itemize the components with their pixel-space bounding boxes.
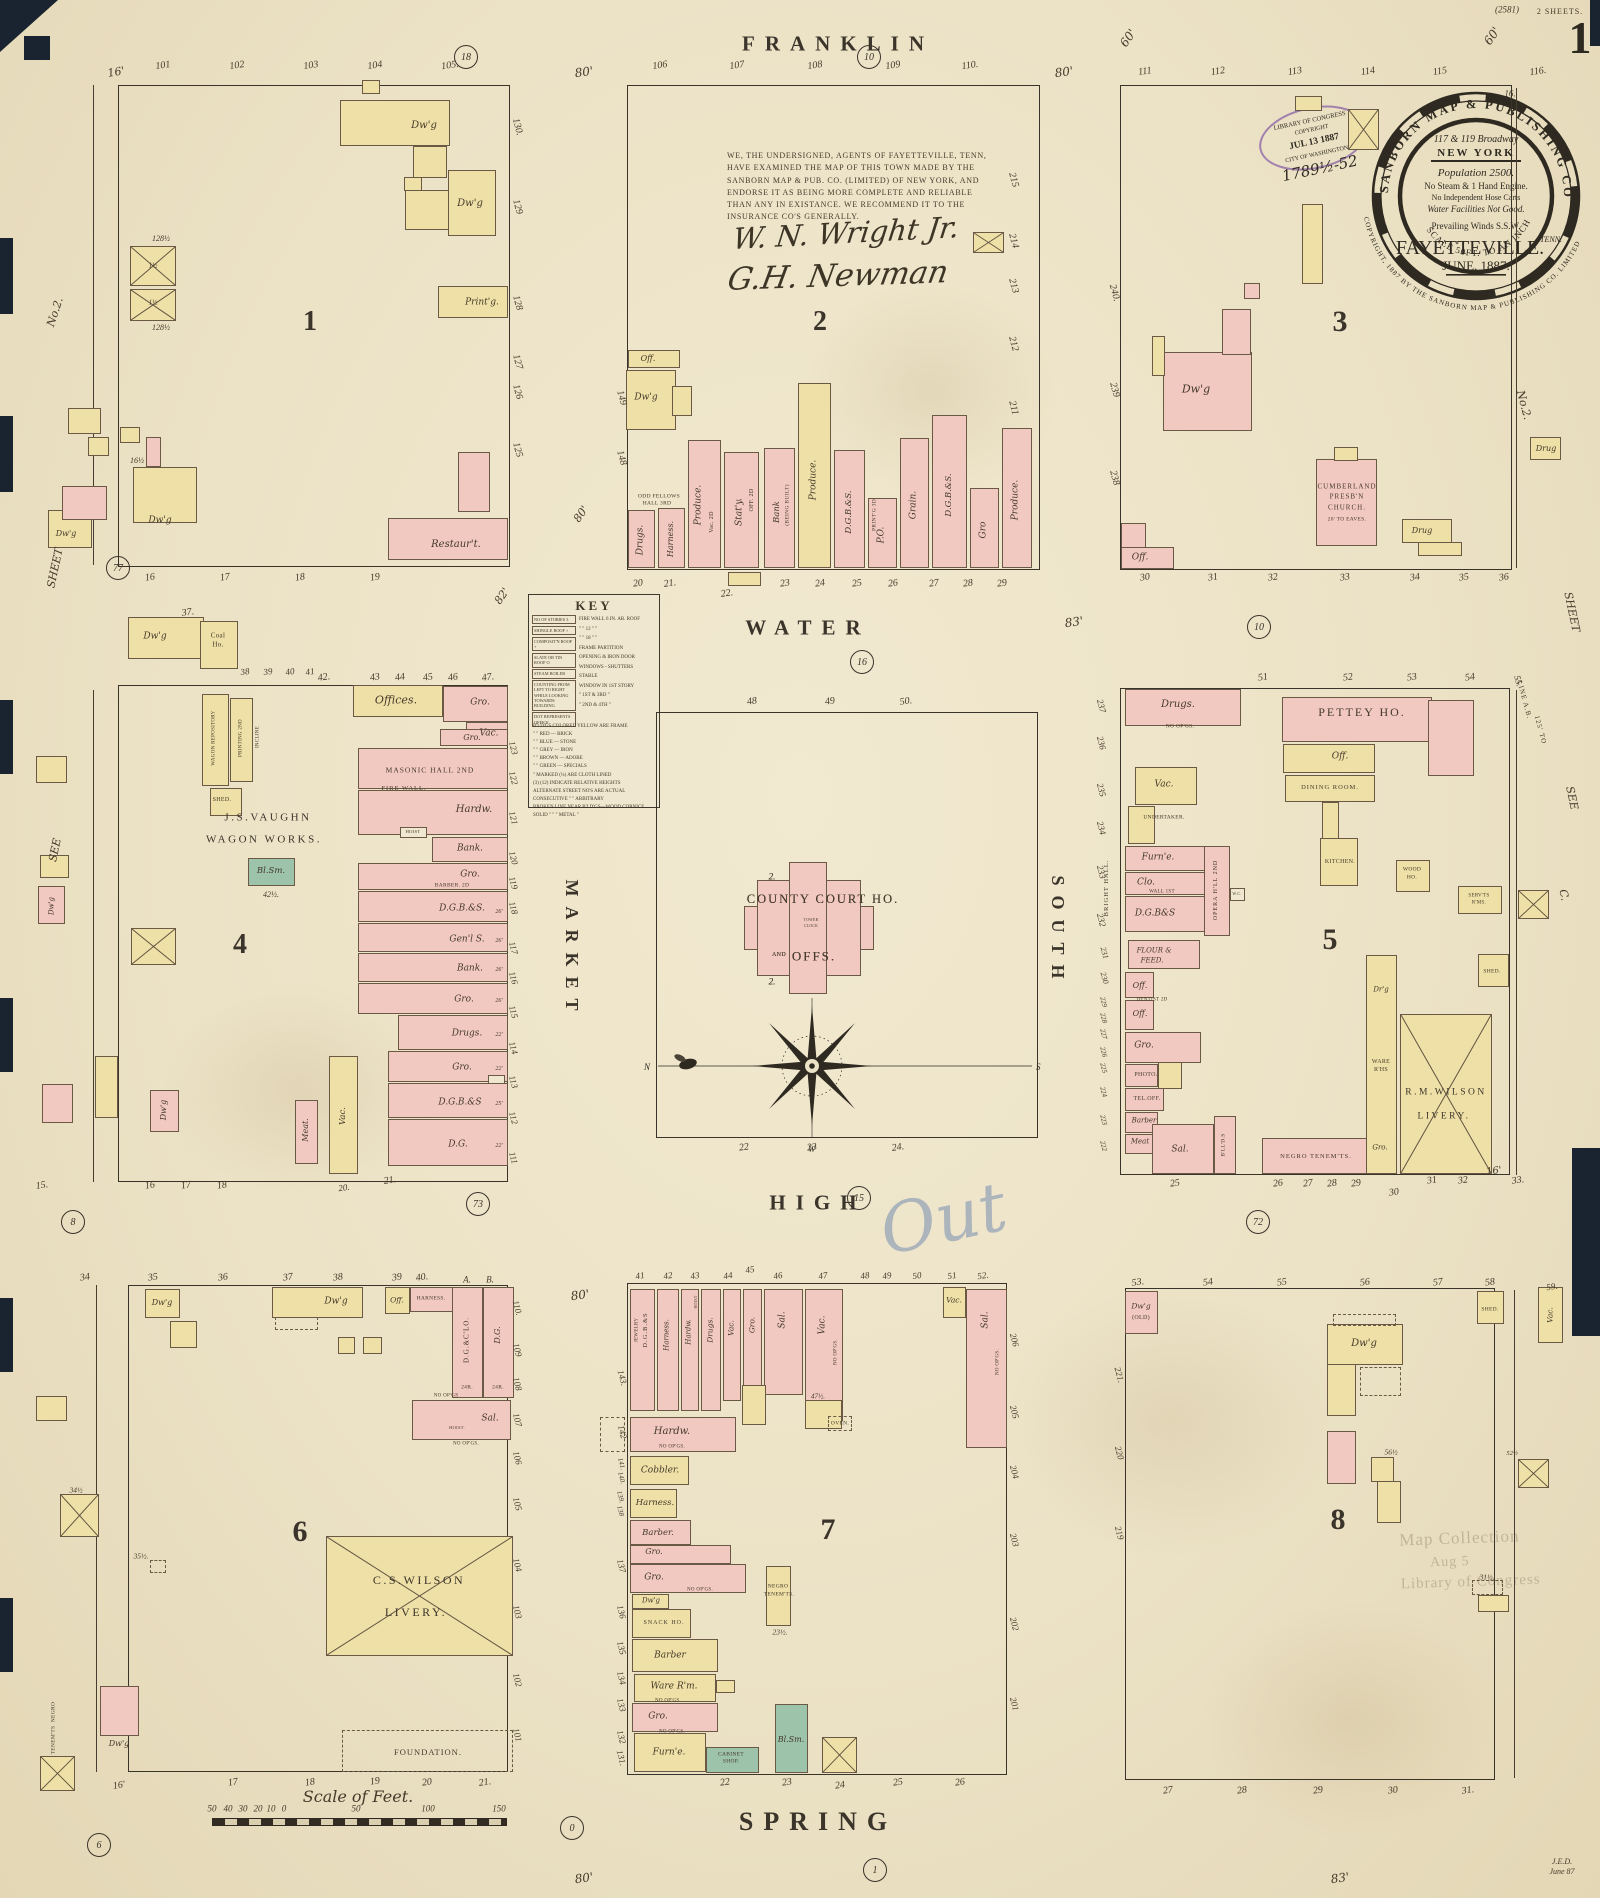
building-label: WOOD	[1403, 867, 1421, 873]
key-lines-column: FIRE WALL 6 IN. AB. ROOF" " 12 " "" " 18…	[579, 615, 659, 710]
lot-number: 23	[806, 1142, 817, 1153]
building-label: Off.	[1133, 982, 1148, 990]
building	[404, 177, 422, 191]
key-line-item: WINDOWS - SHUTTERS	[579, 663, 659, 673]
lot-number: 22'	[495, 1032, 502, 1038]
lot-number: 29	[1350, 1178, 1361, 1189]
building-label: Dw'g	[642, 1598, 660, 1605]
margin-note: SEE	[1564, 785, 1580, 810]
building-label: Gro	[980, 522, 989, 539]
key-color-item: " " GREEN — SPECIALS	[533, 763, 659, 771]
building-label: Off.	[1133, 1010, 1148, 1018]
building-label: NO OP'GS.	[659, 1730, 685, 1735]
building-label: SHOP.	[723, 1759, 739, 1765]
lot-number: 133	[615, 1697, 627, 1712]
lot-number: 132	[615, 1729, 627, 1744]
building-label: Vac.	[1155, 781, 1174, 790]
building	[701, 1289, 721, 1411]
lot-number: 26'	[495, 909, 502, 915]
lot-number: 125	[510, 441, 524, 458]
key-color-item: B'LD'GS COLORED YELLOW ARE FRAME	[533, 723, 659, 731]
building-label: LIVERY.	[385, 1606, 447, 1618]
building-label: DINING ROOM.	[1301, 785, 1359, 792]
building	[150, 1560, 166, 1573]
tower-clock-label: TOWER	[804, 919, 819, 923]
lot-number: 230	[1099, 971, 1110, 985]
key-color-item: CONSECUTIVE " " ARBITRARY	[533, 796, 659, 804]
lot-number: 107	[729, 60, 745, 72]
lot-number: 47	[818, 1271, 828, 1281]
building-label: Grain.	[910, 491, 919, 519]
scale-bar-label: 150	[492, 1805, 506, 1814]
building	[1377, 1481, 1401, 1523]
street-width-measurement: 80'	[1054, 65, 1074, 79]
scale-bar-label: 50	[352, 1805, 361, 1814]
building-label: C.S.WILSON	[373, 1574, 465, 1586]
lot-number: 36	[1498, 572, 1509, 583]
building-label: HOIST	[406, 830, 421, 835]
building-label: SERV'TS	[1468, 894, 1489, 899]
building	[1371, 1457, 1394, 1482]
scale-bar	[212, 1818, 507, 1826]
lot-number: 23	[781, 1777, 792, 1788]
building	[1418, 542, 1462, 556]
lot-number: June 87	[1549, 1868, 1574, 1876]
lot-number: 240.	[1107, 283, 1121, 302]
circled-survey-marker: 15	[847, 1186, 871, 1210]
building-label: NO OP'GS.	[996, 1349, 1001, 1375]
lot-number: 42.	[317, 672, 331, 684]
lot-number: 48	[860, 1271, 870, 1281]
key-color-item: " " RED — BRICK	[533, 731, 659, 739]
lot-number: 139.	[615, 1490, 625, 1504]
lot-number: 26'	[495, 967, 502, 973]
lot-number: 42½.	[263, 891, 279, 899]
building	[362, 80, 380, 94]
lot-number: 119	[507, 876, 519, 891]
scale-bar-label: 0	[282, 1805, 287, 1814]
circled-survey-marker: 72	[1246, 1210, 1270, 1234]
building-label: Gro.	[470, 699, 490, 708]
circled-survey-marker: 1	[863, 1858, 887, 1882]
building-label: Sal.	[481, 1415, 498, 1424]
key-color-notes: B'LD'GS COLORED YELLOW ARE FRAME" " RED …	[533, 723, 659, 820]
lot-number: 44	[723, 1271, 733, 1281]
lot-number: 56	[1359, 1277, 1370, 1288]
lot-number: 23	[779, 578, 790, 589]
lot-number: 26'	[495, 938, 502, 944]
building	[36, 1396, 67, 1421]
lot-number: 238	[1107, 469, 1121, 486]
lot-number: 38	[240, 667, 250, 677]
lot-number: 51	[1257, 672, 1268, 683]
lot-number: 33	[1339, 572, 1350, 583]
building	[1125, 1291, 1158, 1334]
building-label: 20' TO EAVES.	[1328, 517, 1367, 523]
lot-number: 104	[367, 60, 383, 72]
street-name: MARKET	[563, 880, 581, 1021]
tower-clock-label: CLOCK	[804, 925, 818, 929]
building	[632, 1703, 718, 1732]
circled-survey-marker: 10	[1247, 615, 1271, 639]
building-label: D.G.B.&S.	[845, 490, 854, 533]
street-width-measurement: 83'	[1064, 615, 1084, 629]
building	[170, 1321, 197, 1348]
lot-number: 17	[180, 1180, 191, 1191]
building	[1128, 806, 1155, 844]
building-label: NO OP'GS.	[453, 1442, 479, 1447]
building-label: Meat.	[302, 1118, 310, 1141]
stable-cross-icon	[1519, 1460, 1548, 1487]
lot-number: 1½	[149, 300, 158, 307]
street-width-measurement: 80'	[570, 1288, 590, 1302]
lot-number: 51	[947, 1271, 957, 1281]
building-label: D.G.B.&S	[643, 1312, 650, 1347]
circled-survey-marker: 18	[454, 45, 478, 69]
building-label: SNACK HO.	[643, 1620, 684, 1626]
building	[728, 572, 761, 586]
key-line-item: STABLE	[579, 672, 659, 682]
lot-number: 20	[632, 578, 643, 589]
building-label: JEWELRY	[635, 1318, 640, 1343]
key-color-item: BROKEN LINE NEAR B'LD'GS—WOOD CORNICE	[533, 804, 659, 812]
key-symbol-column: NO OF STORIES 3SHINGLE ROOF ×COMPOSIT'N …	[532, 615, 576, 729]
lot-number: 43	[690, 1271, 700, 1281]
building-label: FIRE WALL.	[381, 786, 426, 793]
building-label: NO OP'GS.	[687, 1588, 713, 1593]
lot-number: 137	[615, 1558, 627, 1573]
lot-number: 203	[1008, 1532, 1020, 1547]
lot-number: 16½	[130, 457, 144, 465]
building-label: OFF. 2D	[749, 489, 755, 512]
lot-number: 223	[1098, 1114, 1107, 1126]
courthouse-offices-label: OFFS.	[792, 950, 836, 963]
building-label: (BEING BUILT)	[785, 484, 791, 525]
courthouse-and-label: AND	[772, 952, 786, 958]
building-label: Dw'g	[148, 517, 171, 526]
lot-number: 29	[1312, 1785, 1323, 1796]
building-label: Barber	[1132, 1118, 1157, 1125]
block-number: 4	[233, 931, 247, 959]
lot-number: 220	[1113, 1445, 1125, 1460]
key-line-item: " " 12 " "	[579, 625, 659, 635]
lot-number: 126	[510, 383, 524, 400]
scale-bar-label: 30	[239, 1805, 248, 1814]
building-label: Gro.	[463, 734, 480, 742]
building-label: ODD FELLOWS	[638, 494, 680, 500]
lot-number: 22	[719, 1777, 730, 1788]
building-label: Vac.	[1546, 1307, 1554, 1323]
lot-number: 31.	[1461, 1785, 1475, 1797]
building-label: TEL.OFF.	[1134, 1096, 1161, 1102]
building	[358, 923, 508, 952]
building-label: Ware R'm.	[651, 1683, 698, 1692]
lot-number: 40.	[415, 1272, 429, 1284]
lot-number: 31	[1426, 1175, 1437, 1186]
building-label: INCLINE	[256, 726, 261, 748]
building-label: Drugs.	[452, 1030, 483, 1039]
building-label: R'HS	[1374, 1067, 1388, 1073]
key-line-item: " " 18 " "	[579, 634, 659, 644]
lot-number: 19	[369, 572, 380, 583]
lot-number: 31½.	[1480, 1573, 1495, 1581]
lot-number: 21.	[383, 1175, 397, 1187]
building-label: Sal.	[982, 1311, 991, 1328]
building-label: HOIST.	[449, 1426, 465, 1431]
building	[36, 756, 67, 783]
building-label: MASONIC HALL 2ND	[386, 766, 475, 774]
building-label: SHED.	[1483, 969, 1500, 975]
building	[1428, 700, 1474, 776]
lot-number: 50	[912, 1271, 922, 1281]
building-label: R.M.WILSON	[1405, 1088, 1486, 1098]
building	[62, 486, 107, 520]
building-label: D.G.B.&S.	[945, 473, 954, 516]
building	[413, 146, 447, 178]
lot-number: 57	[1432, 1277, 1443, 1288]
building-label: B'LL'D.S	[1221, 1133, 1227, 1156]
building	[672, 386, 692, 416]
lot-number: 59.	[1546, 1282, 1558, 1292]
lot-number: 1½	[149, 263, 158, 270]
building-label: PHOTO.	[1134, 1072, 1157, 1078]
building	[1152, 336, 1165, 376]
lot-number: 224	[1098, 1086, 1107, 1098]
lot-number: 117	[507, 941, 519, 956]
building-label: J.S.VAUGHN	[224, 813, 311, 824]
building-label: Meat	[1131, 1139, 1149, 1146]
lot-number: 24	[834, 1780, 845, 1791]
building-label: CUMBERLAND	[1317, 484, 1376, 491]
street-width-measurement: 80'	[574, 1871, 594, 1885]
lot-number: 38	[332, 1272, 343, 1283]
lot-number: 226	[1098, 1046, 1107, 1058]
building	[1244, 283, 1260, 299]
scale-bar-label: 20	[254, 1805, 263, 1814]
building	[1295, 96, 1322, 111]
lot-number: 49	[882, 1271, 892, 1281]
lot-number: 45	[422, 672, 433, 683]
building-label: Dw'g	[56, 530, 77, 538]
block-number: 6	[293, 1517, 308, 1547]
lot-number: 101	[155, 60, 171, 72]
circled-survey-marker: 0	[560, 1816, 584, 1840]
block-outline	[1125, 1288, 1495, 1780]
key-line-item: FIRE WALL 6 IN. AB. ROOF	[579, 615, 659, 625]
building	[120, 427, 140, 443]
key-symbol-item: STEAM BOILER	[532, 669, 576, 678]
street-width-measurement: 60'	[1482, 25, 1502, 47]
lot-number: 234	[1095, 820, 1107, 835]
scan-edge-artifact	[1590, 0, 1600, 46]
lot-number: 128½	[152, 235, 170, 243]
building	[95, 1056, 118, 1118]
building-label: Vac.	[339, 1107, 348, 1125]
lot-number: 131.	[615, 1749, 628, 1767]
storey-count: 2.	[769, 978, 776, 987]
margin-note: No.2.	[45, 296, 65, 328]
building-label: Vac. 2D	[709, 511, 715, 532]
building	[405, 190, 449, 230]
building	[358, 863, 508, 890]
building-label: Drugs.	[637, 525, 646, 556]
building-label: Gen'l S.	[449, 936, 484, 945]
lot-number: 27	[928, 578, 939, 589]
building-label: Offices.	[375, 695, 417, 706]
building-label: Vac.	[480, 730, 499, 739]
building-label: Furn'e.	[1142, 854, 1175, 863]
lot-number: 35½.	[134, 1552, 149, 1560]
building	[363, 1337, 382, 1354]
lot-number: 102	[229, 60, 245, 72]
building-label: Dw'g	[634, 394, 657, 403]
key-color-item: (3) (12) INDICATE RELATIVE HEIGHTS	[533, 780, 659, 788]
lot-number: 48	[746, 696, 757, 707]
lot-number: 26	[887, 578, 898, 589]
building	[1283, 744, 1375, 773]
stable-cross-icon	[974, 233, 1003, 252]
lot-number: 27	[1162, 1785, 1173, 1796]
building-label: Dw'g	[457, 199, 483, 209]
building-label: D.G.B.&S.	[439, 905, 485, 914]
building-label: Sal.	[779, 1311, 788, 1328]
building-label: BRIGHT HALL.	[1104, 860, 1111, 917]
lot-number: 41	[635, 1271, 645, 1281]
lot-number: 23½.	[773, 1628, 788, 1636]
lot-number: 28	[1236, 1785, 1247, 1796]
lot-number: 40	[285, 667, 295, 677]
building	[716, 1680, 735, 1693]
building-label: Drugs.	[1161, 700, 1195, 710]
building	[1158, 1062, 1182, 1089]
lot-number: 22.	[720, 588, 734, 600]
lot-number: 113	[507, 1075, 519, 1090]
lot-number: 28	[962, 578, 973, 589]
block-number: 2	[813, 308, 827, 336]
lot-number: 16.	[1504, 90, 1515, 99]
circled-survey-marker: 6	[87, 1833, 111, 1857]
building	[742, 1385, 766, 1425]
building-label: CHURCH.	[1328, 505, 1366, 512]
lot-number: A.	[463, 1276, 471, 1285]
block-number: 3	[1333, 307, 1348, 337]
building-label: WALL 1ST	[1149, 890, 1175, 895]
lot-number: 231	[1099, 946, 1110, 960]
building-label: HALL 3RD	[643, 501, 672, 507]
margin-note: SHEET	[45, 547, 64, 589]
stable-cross-icon	[132, 929, 175, 964]
lot-number: 27	[1302, 1178, 1313, 1189]
key-symbol-item: COMPOSIT'N ROOF +	[532, 637, 576, 652]
building-label: Vac.	[727, 1320, 735, 1336]
building-label: NO OP'GS.	[1166, 724, 1194, 730]
lot-number: 19	[369, 1776, 380, 1787]
lot-number: 114	[1360, 66, 1376, 78]
lot-number: 29	[996, 578, 1007, 589]
stable-cross-icon	[1519, 891, 1548, 918]
lot-number: 228	[1098, 1012, 1107, 1024]
lot-number: 221.	[1113, 1366, 1126, 1384]
key-line-item: " 2ND & 4TH "	[579, 701, 659, 711]
margin-note: No.2.	[1515, 389, 1533, 421]
lot-number: 25	[1169, 1178, 1180, 1189]
lot-number: 34½	[69, 1486, 82, 1494]
street-width-measurement: 16'	[107, 65, 126, 79]
building-label: Bl.Sm.	[778, 1736, 805, 1744]
lot-number: 34	[79, 1272, 90, 1283]
building-label: Produce.	[1012, 480, 1021, 521]
lot-number: 106	[652, 60, 668, 72]
building	[358, 983, 508, 1014]
building-label: Dw'g	[160, 1100, 168, 1121]
lot-number: 53.	[1131, 1277, 1145, 1289]
building-label: Harness.	[636, 1499, 674, 1508]
building-label: Sal.	[1171, 1146, 1188, 1155]
lot-number: 235	[1095, 782, 1107, 797]
lot-number: 107	[511, 1412, 523, 1427]
lot-number: 121	[507, 810, 519, 825]
building-label: 24R.	[492, 1385, 504, 1391]
lot-number: 35	[1458, 572, 1469, 583]
building-label: Vac.	[819, 1316, 828, 1335]
key-line-item: WINDOW IN 1ST STORY	[579, 682, 659, 692]
building-label: Furn'e.	[653, 1749, 686, 1758]
lot-number: 15.	[35, 1180, 49, 1192]
lot-number: 239	[1107, 381, 1121, 398]
building	[1316, 459, 1377, 546]
margin-street-line	[93, 690, 94, 1182]
key-symbol-item: NO OF STORIES 3	[532, 615, 576, 624]
lot-number: 58	[1484, 1277, 1495, 1288]
lot-number: 17	[219, 572, 230, 583]
building-label: Hardw.	[686, 1319, 693, 1345]
storey-count: 2.	[769, 873, 776, 882]
building-label: NEGRO	[768, 1584, 788, 1590]
lot-number: 33.	[1511, 1175, 1525, 1187]
lot-number: 202	[1008, 1616, 1020, 1631]
building-label: Restaur't.	[431, 540, 481, 550]
lot-number: 54	[1202, 1277, 1213, 1288]
building-label: P.O.	[878, 527, 887, 544]
stable-building	[1518, 1459, 1549, 1488]
building-label: Dw'g	[1182, 384, 1210, 395]
lot-number: 43	[369, 672, 380, 683]
building-label: Gro.	[452, 1064, 472, 1073]
building	[744, 906, 758, 950]
building-label: Drug	[1536, 445, 1557, 453]
building	[743, 1289, 762, 1389]
building-label: Dw'g	[109, 1740, 130, 1748]
street-width-measurement: 16'	[1486, 1166, 1503, 1178]
building-label: Gro.	[1134, 1042, 1154, 1051]
scan-edge-artifact	[0, 998, 13, 1072]
building	[88, 437, 109, 456]
margin-street-line	[1514, 1290, 1515, 1778]
lot-number: 54	[1464, 672, 1475, 683]
lot-number: 56½	[1384, 1448, 1397, 1456]
lot-number: 140.	[616, 1471, 626, 1485]
lot-number: 45	[745, 1265, 755, 1275]
lot-number: 37.	[181, 607, 195, 619]
lot-number: J.E.D.	[1552, 1858, 1572, 1866]
key-line-item: FRAME PARTITION	[579, 644, 659, 654]
building	[630, 1289, 655, 1411]
lot-number: 42	[663, 1271, 673, 1281]
building-label: Off.	[390, 1296, 404, 1304]
block-number: 1	[303, 308, 317, 336]
building-label: NEGRO TENEM'TS.	[1280, 1154, 1352, 1161]
building-label: Hardw.	[654, 1427, 690, 1437]
